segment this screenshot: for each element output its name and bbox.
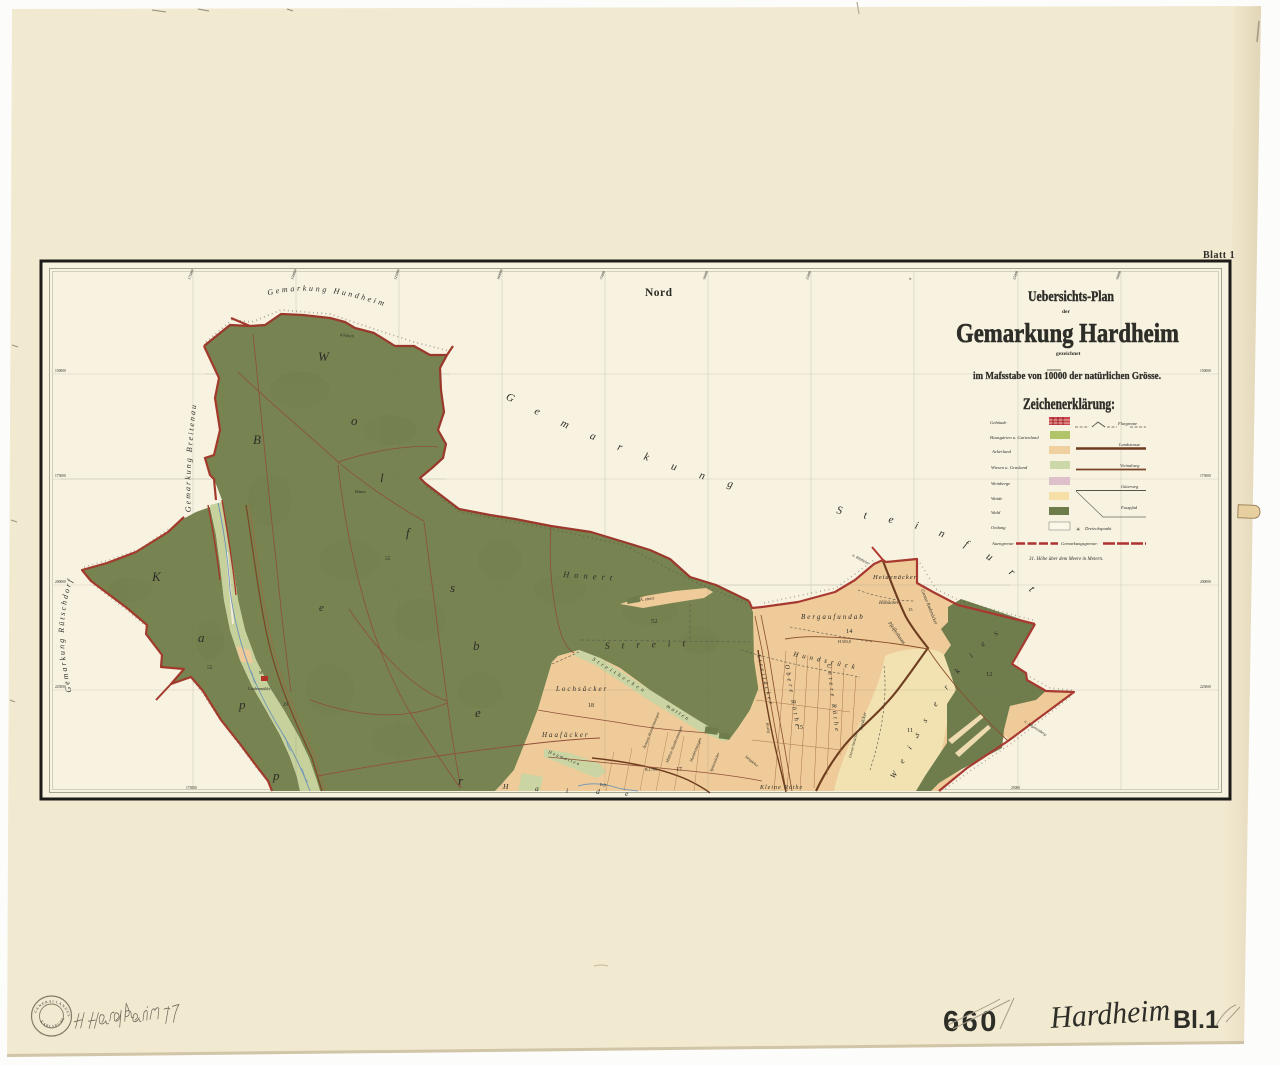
svg-text:e: e xyxy=(319,602,324,614)
svg-text:15: 15 xyxy=(908,607,913,612)
svg-text:Gebäude: Gebäude xyxy=(990,420,1007,425)
svg-text:12: 12 xyxy=(986,671,993,678)
svg-text:Uebersichts-Plan: Uebersichts-Plan xyxy=(1028,289,1115,305)
svg-text:Landstrasse: Landstrasse xyxy=(1118,442,1140,447)
svg-text:Lochsäcker: Lochsäcker xyxy=(555,685,608,693)
svg-text:l: l xyxy=(380,470,384,485)
svg-text:K: K xyxy=(151,569,162,584)
svg-text:Gemarkung Hardheim: Gemarkung Hardheim xyxy=(956,318,1179,348)
svg-text:✳: ✳ xyxy=(1076,527,1080,533)
svg-text:Räma: Räma xyxy=(355,489,366,494)
svg-text:Lindenmühle: Lindenmühle xyxy=(248,686,270,691)
svg-text:17: 17 xyxy=(676,767,682,773)
svg-text:e: e xyxy=(475,705,481,720)
svg-text:175000: 175000 xyxy=(1200,474,1211,478)
svg-text:55: 55 xyxy=(385,556,391,562)
svg-text:Bl.1: Bl.1 xyxy=(1173,1006,1219,1034)
svg-text:Haafäcker: Haafäcker xyxy=(541,731,590,739)
svg-text:i: i xyxy=(566,786,568,795)
svg-text:55: 55 xyxy=(207,665,213,671)
svg-text:175000: 175000 xyxy=(186,786,197,790)
svg-text:15: 15 xyxy=(797,725,803,731)
svg-text:175000: 175000 xyxy=(55,474,66,478)
svg-text:Gemarkungsgrenze:: Gemarkungsgrenze: xyxy=(1061,541,1099,546)
svg-text:d: d xyxy=(596,787,600,796)
svg-text:H: H xyxy=(502,782,509,791)
svg-text:150000: 150000 xyxy=(1200,369,1211,373)
svg-text:29: 29 xyxy=(283,703,289,708)
svg-text:B.1793: B.1793 xyxy=(645,767,657,772)
svg-text:Dreieckspunkt: Dreieckspunkt xyxy=(1084,526,1112,531)
svg-text:225000: 225000 xyxy=(1200,685,1211,689)
svg-text:Güterweg: Güterweg xyxy=(1121,484,1139,489)
svg-text:gezeichnet: gezeichnet xyxy=(1056,351,1081,357)
svg-text:p: p xyxy=(272,768,280,783)
svg-text:660: 660 xyxy=(943,1006,999,1038)
svg-text:Vicinalweg: Vicinalweg xyxy=(1120,463,1140,468)
svg-text:Zeichenerklärung:: Zeichenerklärung: xyxy=(1023,396,1115,413)
svg-text:Nord: Nord xyxy=(645,287,673,299)
svg-text:31. Höhe über dem Meere in Met: 31. Höhe über dem Meere in Metern. xyxy=(1029,557,1103,562)
svg-text:B: B xyxy=(253,432,261,447)
svg-text:W: W xyxy=(318,349,330,364)
svg-text:p: p xyxy=(238,697,246,712)
svg-text:b: b xyxy=(473,638,480,653)
svg-text:Ackerland: Ackerland xyxy=(991,449,1012,454)
svg-text:Erfa: Erfa xyxy=(599,783,607,787)
svg-text:200000: 200000 xyxy=(1200,580,1211,584)
svg-text:a: a xyxy=(535,784,539,793)
svg-text:18: 18 xyxy=(588,703,594,709)
svg-text:Fusspfad: Fusspfad xyxy=(1120,505,1138,510)
svg-text:M.: M. xyxy=(259,671,263,675)
svg-text:a: a xyxy=(198,630,205,645)
svg-text:25000: 25000 xyxy=(1011,786,1020,790)
svg-text:Kleine Röthe: Kleine Röthe xyxy=(759,785,803,791)
svg-text:Höhäcker: Höhäcker xyxy=(878,601,899,606)
svg-text:Auengrenze: Auengrenze xyxy=(991,541,1014,546)
svg-text:Blatt 1: Blatt 1 xyxy=(1203,250,1235,261)
svg-text:Hausgärten u. Gartenland: Hausgärten u. Gartenland xyxy=(989,435,1039,440)
svg-text:Oedung: Oedung xyxy=(991,525,1006,530)
svg-text:Flurgrenze: Flurgrenze xyxy=(1117,421,1137,426)
svg-text:der: der xyxy=(1062,309,1071,315)
svg-text:Heidenäcker: Heidenäcker xyxy=(872,574,917,581)
svg-text:Weinberge: Weinberge xyxy=(991,481,1010,486)
svg-text:im Mafsstabe von 10000 der nat: im Mafsstabe von 10000 der natürlichen G… xyxy=(973,371,1161,382)
svg-text:Wiesen u. Grasland: Wiesen u. Grasland xyxy=(991,465,1028,470)
svg-text:150000: 150000 xyxy=(55,369,66,373)
svg-text:Wald: Wald xyxy=(991,510,1001,515)
svg-text:Waide: Waide xyxy=(991,496,1002,501)
svg-text:s: s xyxy=(450,580,455,595)
svg-text:52: 52 xyxy=(651,618,658,625)
svg-text:o: o xyxy=(351,413,358,428)
svg-text:14: 14 xyxy=(846,628,853,635)
svg-text:Bergaufundab: Bergaufundab xyxy=(801,613,865,621)
